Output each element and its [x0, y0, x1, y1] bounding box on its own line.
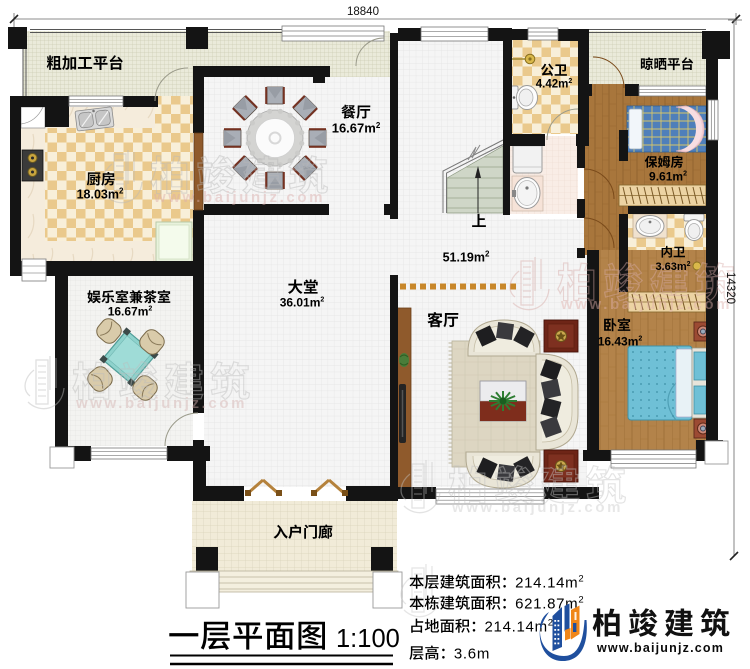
svg-text:51.19m2: 51.19m2 [443, 250, 490, 265]
svg-text:14320: 14320 [724, 272, 736, 304]
svg-text:www.baijunjz.com: www.baijunjz.com [451, 499, 623, 516]
svg-text:9.61m2: 9.61m2 [649, 169, 687, 183]
svg-text:www.baijunjz.com: www.baijunjz.com [75, 395, 247, 412]
svg-text:www.baijunjz.com: www.baijunjz.com [596, 641, 724, 655]
svg-text:16.67m2: 16.67m2 [108, 304, 153, 318]
svg-text:214.14m2: 214.14m2 [515, 574, 584, 592]
svg-text:1:100: 1:100 [336, 625, 400, 653]
svg-text:18840: 18840 [347, 6, 379, 18]
svg-text:3.63m2: 3.63m2 [655, 261, 690, 273]
svg-text:16.67m2: 16.67m2 [332, 121, 381, 136]
svg-text:www.baijunjz.com: www.baijunjz.com [153, 189, 325, 206]
svg-text:16.43m2: 16.43m2 [598, 334, 643, 348]
svg-text:3.6m: 3.6m [454, 646, 490, 663]
svg-text:www.baijunjz.com: www.baijunjz.com [560, 296, 732, 313]
svg-text:4.42m2: 4.42m2 [536, 78, 573, 90]
svg-text:36.01m2: 36.01m2 [280, 295, 325, 309]
svg-text:18.03m2: 18.03m2 [77, 187, 124, 202]
